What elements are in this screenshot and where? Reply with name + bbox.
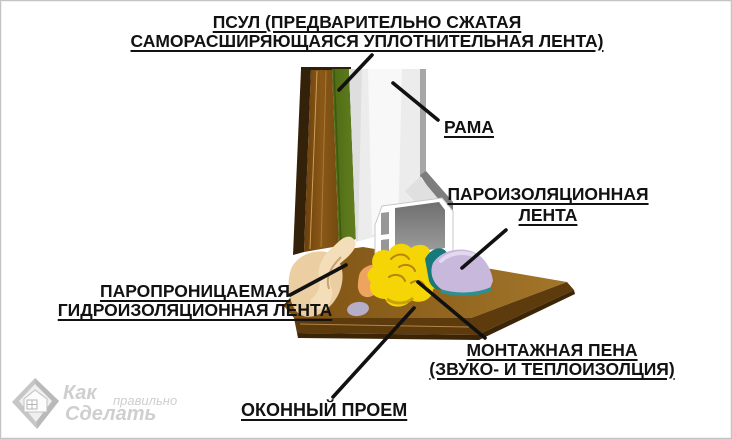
diagram-canvas: ПСУЛ (ПРЕДВАРИТЕЛЬНО СЖАТАЯ САМОРАСШИРЯЮ… [0,0,732,439]
vapor-barrier-tape-illustration [431,250,493,296]
label-mounting-foam: МОНТАЖНАЯ ПЕНА (ЗВУКО- И ТЕПЛОИЗОЛЦИЯ) [417,341,687,379]
label-window-opening: ОКОННЫЙ ПРОЕМ [241,400,407,421]
label-frame: РАМА [444,117,494,138]
watermark-word-kak: Как [63,382,97,405]
watermark-word-sdelat: Сделать [65,403,156,426]
watermark-house-icon [12,378,59,429]
label-psul: ПСУЛ (ПРЕДВАРИТЕЛЬНО СЖАТАЯ САМОРАСШИРЯЮ… [17,13,717,51]
label-psul-line2: САМОРАСШИРЯЮЩАЯСЯ УПЛОТНИТЕЛЬНАЯ ЛЕНТА) [131,31,604,51]
label-vapor-barrier-tape: ПАРОИЗОЛЯЦИОННАЯ ЛЕНТА [438,184,658,226]
label-waterproof-tape: ПАРОПРОНИЦАЕМАЯ ГИДРОИЗОЛЯЦИОННАЯ ЛЕНТА [45,282,345,320]
label-psul-line1: ПСУЛ (ПРЕДВАРИТЕЛЬНО СЖАТАЯ [213,12,522,32]
